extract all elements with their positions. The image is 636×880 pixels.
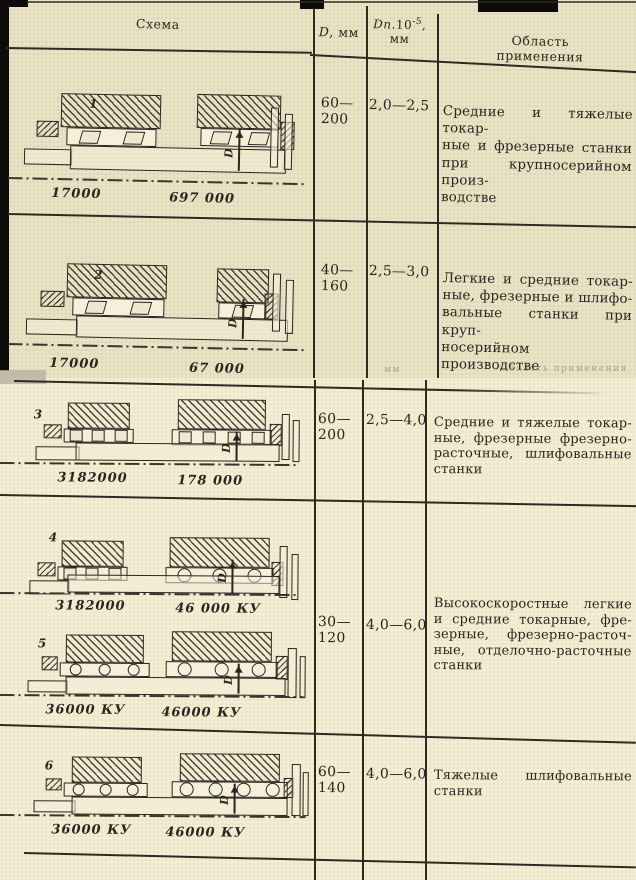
shaft xyxy=(76,443,280,462)
scheme-row-6: 6 D 36000 КУ 46000 КУ xyxy=(0,742,312,860)
cell-dn-value: 2,5—4,0 xyxy=(366,412,427,428)
housing-bar xyxy=(293,420,300,462)
scheme-row-1: 1 D 17000 697 000 xyxy=(7,62,310,228)
housing-bar xyxy=(299,656,305,698)
roller xyxy=(92,430,105,442)
scan-edge-top-left xyxy=(0,0,28,7)
column-divider-d-top xyxy=(366,6,368,378)
collar-block xyxy=(276,656,288,680)
column-divider-dn-top xyxy=(437,14,439,378)
bearing-label: 17000 xyxy=(51,186,102,202)
collar-block xyxy=(270,424,282,446)
header-dn-line1: Dn.10-5, xyxy=(366,14,434,32)
shaft-step xyxy=(28,680,68,692)
collar-block xyxy=(42,656,58,670)
housing-bar xyxy=(272,274,281,332)
roller xyxy=(115,430,128,442)
taper-roller xyxy=(209,131,232,144)
cell-d-value: 200 xyxy=(321,111,349,128)
application-line: Средние и тяжелые токар- xyxy=(442,103,633,141)
bearing-label: 46000 КУ xyxy=(165,825,245,841)
shaft xyxy=(76,315,288,341)
application-line: Тяжелые шлифовальные xyxy=(434,768,632,785)
application-line: станки xyxy=(434,462,632,479)
ball xyxy=(251,663,265,677)
taper-roller xyxy=(78,130,101,143)
ball xyxy=(265,783,279,797)
cell-dn-value: 2,0—2,5 xyxy=(369,97,430,114)
housing-bar xyxy=(284,114,293,170)
centerline xyxy=(8,177,304,185)
scanned-table-page: Схема D, мм Dn.10-5, мм Область применен… xyxy=(0,0,636,880)
shaft-step xyxy=(34,800,76,812)
housing-bar xyxy=(302,772,308,816)
centerline xyxy=(0,462,299,466)
application-line: носерийном производстве xyxy=(441,339,632,377)
bearing-housing-block xyxy=(178,399,266,430)
d-dimension-arrow xyxy=(236,432,238,462)
application-line: и средние токарные, фре- xyxy=(434,612,632,629)
shaft xyxy=(70,145,286,174)
cell-dn-value: 2,5—3,0 xyxy=(369,263,430,280)
header-oblast-label: Область применения xyxy=(467,32,613,65)
application-text: Средние и тяжелые токар- ные, фрезерные … xyxy=(434,415,632,479)
collar-block xyxy=(36,121,58,137)
application-text: Средние и тяжелые токар- ные и фрезерные… xyxy=(441,103,633,210)
application-line: расточные, шлифовальные xyxy=(434,446,632,463)
cell-dn-value: 4,0—6,0 xyxy=(366,617,427,633)
collar-block xyxy=(46,778,62,790)
bearing-rollers xyxy=(66,127,156,147)
application-text: Тяжелые шлифовальные станки xyxy=(434,768,632,801)
application-text: Высокоскоростные легкие и средние токарн… xyxy=(433,596,632,675)
bearing-housing-block xyxy=(68,402,130,428)
scheme-row-4: 4 D 3182000 46 000 КУ xyxy=(0,500,312,624)
shaft-step xyxy=(24,148,72,165)
ball xyxy=(69,663,81,675)
housing-bar xyxy=(282,414,290,460)
scheme-number: 6 xyxy=(45,758,53,772)
scheme-number: 4 xyxy=(49,530,57,544)
bearing-label: 697 000 xyxy=(169,190,235,206)
housing-bar xyxy=(285,280,294,334)
application-line: при крупносерийном произ- xyxy=(441,155,632,193)
header-d-label: D, мм xyxy=(314,24,364,40)
application-line: ные, фрезерные фрезерно- xyxy=(434,431,632,448)
ball xyxy=(237,783,251,797)
shaft xyxy=(65,676,285,696)
application-text: Легкие и средние токар- ные, фрезерные и… xyxy=(441,270,633,377)
bearing-label: 3182000 xyxy=(55,598,125,613)
housing-bar xyxy=(291,764,300,816)
header-d-symbol: D xyxy=(319,24,330,39)
d-dimension-arrow xyxy=(234,784,236,814)
centerline xyxy=(8,343,304,351)
application-line: ные, отделочно-расточные xyxy=(434,643,632,660)
application-line: зерные, фрезерно-расточ- xyxy=(434,627,632,644)
scheme-row-3: 3 D 3182000 178 000 xyxy=(0,390,312,498)
d-dimension-label: D xyxy=(222,148,235,158)
cell-d-value: 60— xyxy=(318,764,351,780)
bearing-rollers xyxy=(72,297,164,317)
bearing-balls xyxy=(60,662,150,677)
bearing-housing-block xyxy=(72,757,142,783)
cell-d-value: 160 xyxy=(321,278,349,295)
d-dimension-arrow xyxy=(231,560,233,594)
cell-d-value: 120 xyxy=(318,630,346,646)
bearing-label: 3182000 xyxy=(57,470,127,485)
header-dn-mult: .10 xyxy=(391,18,412,32)
collar-block xyxy=(44,424,62,438)
header-dn-exponent: -5 xyxy=(412,17,422,27)
bearing-housing-block xyxy=(180,753,280,782)
bearing-label: 36000 КУ xyxy=(45,702,125,718)
header-dn-unit: мм xyxy=(365,31,433,46)
d-dimension-arrow xyxy=(238,664,240,694)
bearing-rollers xyxy=(64,428,134,442)
ball xyxy=(72,784,84,796)
cell-d-value: 60— xyxy=(318,411,351,427)
collar-block xyxy=(40,291,64,307)
cell-d-value: 200 xyxy=(318,427,346,443)
housing-bar xyxy=(270,107,279,167)
ball xyxy=(178,662,192,676)
bearing-label: 67 000 xyxy=(189,361,245,377)
d-dimension-label: D xyxy=(222,675,235,685)
taper-roller xyxy=(247,132,270,145)
taper-roller xyxy=(122,131,145,144)
roller xyxy=(203,431,216,443)
scheme-row-5: 5 D 36000 КУ 46000 КУ xyxy=(0,622,312,736)
d-dimension-label: D xyxy=(218,795,231,805)
application-line: станки xyxy=(434,784,632,801)
bearing-housing-block xyxy=(172,631,272,662)
bearing-label: 178 000 xyxy=(177,473,243,488)
bearing-housing-block xyxy=(170,537,270,568)
bearing-housing-block xyxy=(61,93,162,129)
d-dimension-label: D xyxy=(216,573,229,583)
header-schema-label: Схема xyxy=(88,15,228,33)
header-dn-comma: , xyxy=(422,18,427,32)
column-divider-d-bottom xyxy=(362,380,364,880)
bearing-label: 17000 xyxy=(49,356,100,372)
application-line: станки xyxy=(433,658,631,675)
housing-bar xyxy=(279,546,287,598)
shaft-step xyxy=(26,318,78,335)
bearing-label: 46000 КУ xyxy=(161,705,241,721)
shaft xyxy=(71,797,287,817)
bearing-label: 36000 КУ xyxy=(51,822,131,838)
cell-d-value: 30— xyxy=(318,614,351,630)
taper-roller xyxy=(129,301,152,314)
ball xyxy=(128,664,140,676)
header-dn-label: Dn.10-5, мм xyxy=(365,14,434,46)
column-divider-schema-top xyxy=(313,8,315,378)
roller xyxy=(69,429,82,441)
header-dn-symbol: Dn xyxy=(373,17,392,31)
d-dimension-label: D xyxy=(220,443,233,453)
bearing-housing-block xyxy=(66,634,144,663)
bearing-housing-block xyxy=(62,540,124,566)
shaft xyxy=(67,574,279,593)
roller xyxy=(252,432,265,444)
taper-roller xyxy=(84,300,107,313)
shaft-step xyxy=(36,446,80,460)
cell-dn-value: 4,0—6,0 xyxy=(366,766,427,782)
ball xyxy=(127,784,139,796)
ghost-header-mm: мм xyxy=(384,365,401,375)
application-line: Высокоскоростные легкие xyxy=(434,596,632,613)
bearing-housing-block xyxy=(67,263,168,299)
scheme-number: 5 xyxy=(38,636,46,650)
bearing-housing-block xyxy=(197,94,282,130)
column-divider-schema-bottom xyxy=(314,380,316,880)
cell-d-value: 40— xyxy=(321,262,354,279)
cell-d-value: 140 xyxy=(318,780,346,796)
scheme-number: 3 xyxy=(34,407,42,421)
cell-d-value: 60— xyxy=(321,95,354,112)
collar-block xyxy=(37,562,55,576)
bearing-balls xyxy=(64,782,148,797)
ball xyxy=(100,784,112,796)
housing-bar xyxy=(287,648,296,698)
d-dimension-label: D xyxy=(226,318,239,328)
header-d-unit: , мм xyxy=(329,24,359,40)
application-line: вальные станки при круп- xyxy=(442,304,633,342)
bearing-label: 46 000 КУ xyxy=(175,601,261,617)
ball xyxy=(180,782,194,796)
scheme-row-2: 2 D 17000 67 000 xyxy=(7,228,310,386)
application-line: Средние и тяжелые токар- xyxy=(434,415,632,432)
roller xyxy=(178,431,191,443)
ball xyxy=(99,664,111,676)
scan-edge-top-line xyxy=(26,1,636,3)
